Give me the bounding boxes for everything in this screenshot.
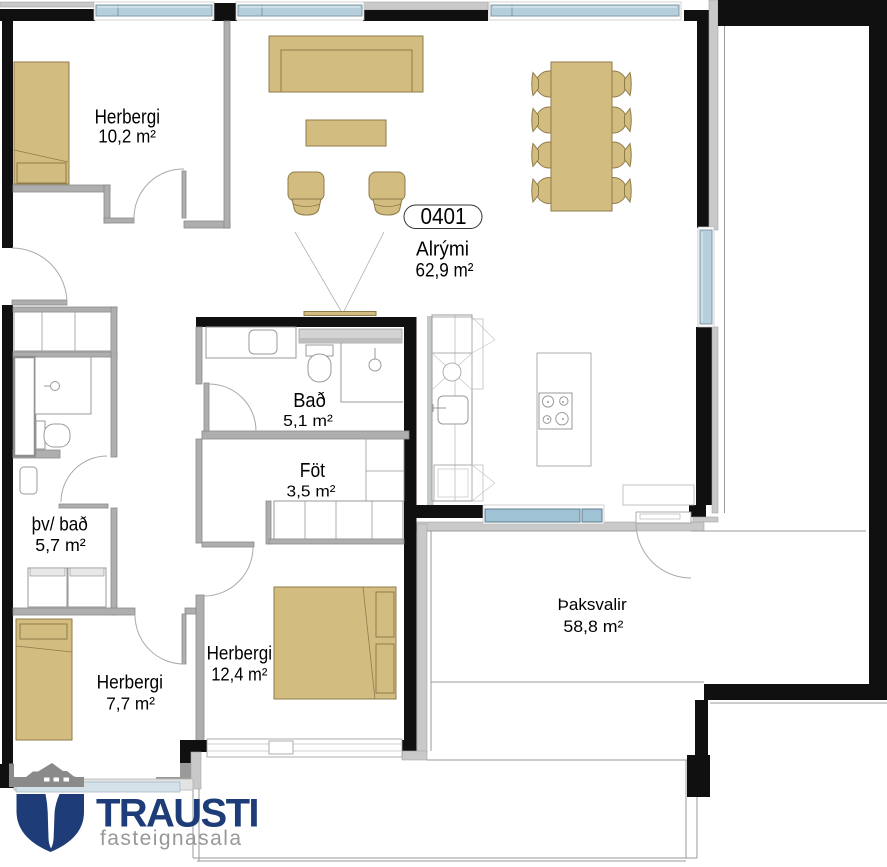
svg-text:5,1 m²: 5,1 m² (283, 413, 333, 430)
svg-text:3,5 m²: 3,5 m² (287, 483, 337, 500)
svg-text:58,8 m²: 58,8 m² (563, 618, 624, 636)
svg-text:Bað: Bað (293, 390, 326, 412)
svg-text:7,7 m²: 7,7 m² (106, 694, 155, 714)
svg-text:Herbergi: Herbergi (95, 106, 160, 128)
svg-text:þv/ bað: þv/ bað (32, 514, 88, 536)
svg-text:12,4 m²: 12,4 m² (211, 665, 267, 685)
svg-text:5,7 m²: 5,7 m² (35, 535, 86, 555)
svg-text:Föt: Föt (300, 460, 326, 482)
svg-text:Herbergi: Herbergi (207, 642, 272, 664)
svg-text:Herbergi: Herbergi (97, 671, 163, 693)
svg-text:Alrými: Alrými (416, 238, 469, 261)
svg-text:10,2 m²: 10,2 m² (98, 127, 156, 147)
svg-text:Þaksvalir: Þaksvalir (558, 595, 627, 614)
svg-text:62,9 m²: 62,9 m² (416, 260, 474, 282)
svg-text:0401: 0401 (421, 203, 467, 229)
